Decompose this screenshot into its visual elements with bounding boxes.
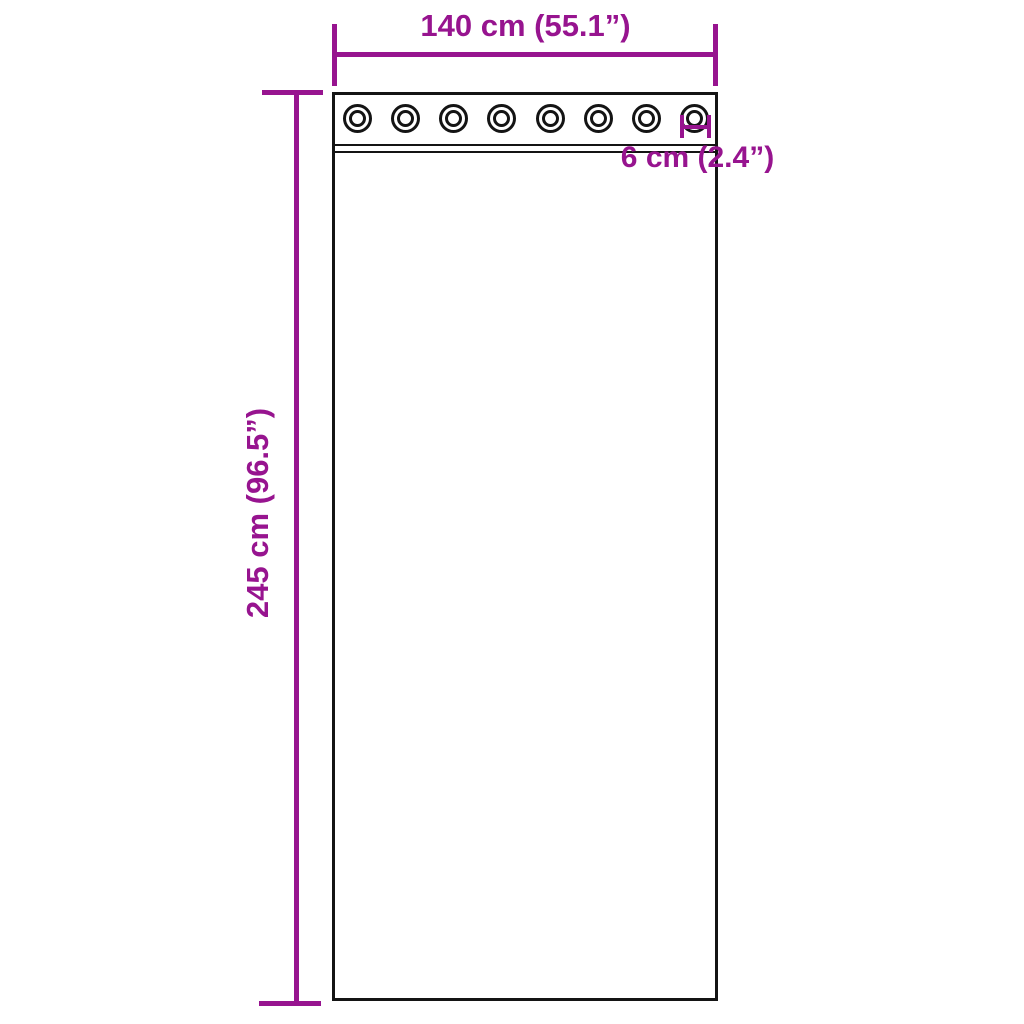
grommet-icon (632, 104, 661, 133)
curtain-dimension-diagram: 140 cm (55.1”) 245 cm (96.5”) 6 cm (2.4”… (0, 0, 1024, 1024)
grommet-hole (686, 110, 703, 127)
grommet-icon (391, 104, 420, 133)
height-dimension-label: 245 cm (96.5”) (238, 363, 278, 663)
grommet-hole (638, 110, 655, 127)
grommet-spacing-label: 6 cm (2.4”) (605, 141, 790, 175)
grommet-spacing-bracket-tick-right (707, 115, 711, 138)
height-dimension-line (294, 92, 299, 1004)
grommet-spacing-bracket-bar (682, 125, 710, 129)
grommet-icon (439, 104, 468, 133)
grommet-hole (542, 110, 559, 127)
width-dimension-tick-right (713, 24, 718, 86)
grommet-spacing-bracket-tick-left (680, 115, 684, 138)
grommet-hole (349, 110, 366, 127)
grommet-icon (584, 104, 613, 133)
width-dimension-line (334, 52, 717, 57)
grommet-icon (343, 104, 372, 133)
grommet-icon (536, 104, 565, 133)
curtain-panel-outline (332, 92, 718, 1001)
grommet-hole (397, 110, 414, 127)
grommet-hole (590, 110, 607, 127)
grommet-icon (487, 104, 516, 133)
height-dimension-tick-bottom (259, 1001, 321, 1006)
grommet-row (343, 103, 709, 133)
width-dimension-label: 140 cm (55.1”) (334, 8, 717, 44)
height-dimension-tick-top (262, 90, 323, 95)
width-dimension-tick-left (332, 24, 337, 86)
grommet-hole (493, 110, 510, 127)
grommet-hole (445, 110, 462, 127)
